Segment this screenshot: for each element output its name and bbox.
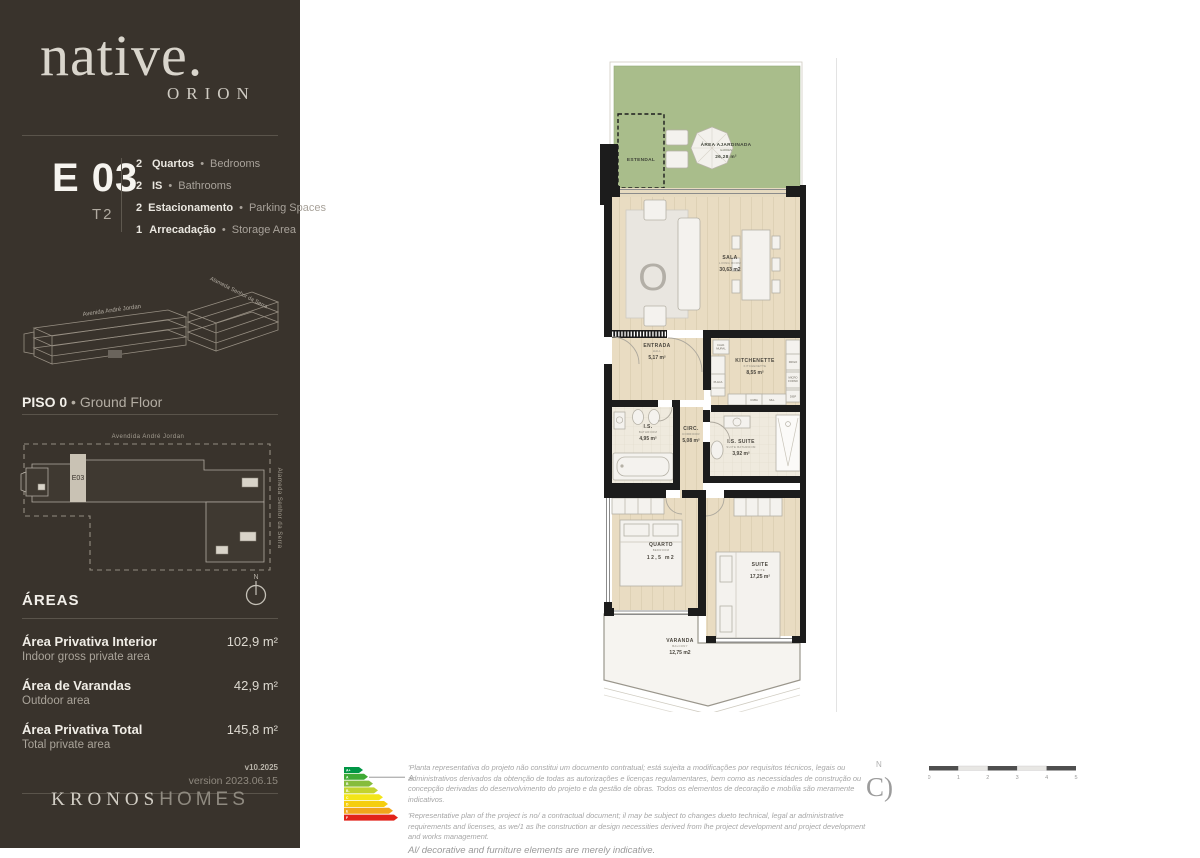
street-label-alameda: Alameda Senhor da Serra bbox=[209, 276, 269, 311]
svg-text:F: F bbox=[346, 816, 348, 820]
unit-code: E 03 bbox=[52, 156, 138, 201]
varanda-sub: BALCONY bbox=[672, 644, 687, 648]
fridge-label: FRIGO bbox=[789, 360, 798, 364]
wardrobe-icon bbox=[612, 498, 664, 514]
feature-row: 2 Quartos • Bedrooms bbox=[136, 158, 296, 170]
feature-pt: Quartos bbox=[152, 158, 194, 170]
disclaimer-en-note: Al/ decorative and furniture elements ar… bbox=[408, 844, 866, 858]
feature-en: Bedrooms bbox=[210, 158, 260, 170]
areas-section: ÁREAS Área Privativa Interior Indoor gro… bbox=[22, 592, 278, 794]
feature-en: Bathrooms bbox=[178, 180, 231, 192]
circ-area-value: 5,08 m² bbox=[682, 438, 700, 444]
disclaimer-pt: 'Planta representativa do projeto não co… bbox=[408, 763, 866, 806]
area-value: 42,9 m² bbox=[234, 678, 278, 707]
area-value: 145,8 m² bbox=[227, 722, 278, 751]
garden-sub: GARDEN bbox=[720, 148, 732, 152]
floorplan-brochure-page: { "colors": { "sidebar_bg": "#39332c", "… bbox=[0, 0, 1200, 848]
dining-table-icon bbox=[732, 230, 780, 300]
feature-qty: 2 bbox=[136, 180, 146, 192]
area-pt: Área Privativa Interior bbox=[22, 634, 157, 649]
is-sub: BATHROOM bbox=[639, 430, 658, 434]
entrada-area-value: 5,17 m² bbox=[648, 355, 666, 361]
sala-sub: LIVING ROOM bbox=[719, 261, 741, 265]
svg-text:1: 1 bbox=[957, 775, 960, 781]
svg-text:4: 4 bbox=[1045, 775, 1048, 781]
bullet: • bbox=[200, 158, 204, 170]
kitchenette-sub: KITCHENETTE bbox=[744, 364, 767, 368]
rug-letter-motif: O bbox=[638, 257, 668, 299]
unit-features-list: 2 Quartos • Bedrooms 2 IS • Bathrooms 2 … bbox=[136, 158, 296, 246]
feature-pt: IS bbox=[152, 180, 162, 192]
area-value: 102,9 m² bbox=[227, 634, 278, 663]
quarto-area-value: 12,5 m2 bbox=[647, 555, 675, 561]
corridor-label: CIRC. CORRIDOR 5,08 m² bbox=[682, 426, 700, 444]
svg-text:3: 3 bbox=[1016, 775, 1019, 781]
is-area-value: 4,95 m² bbox=[639, 436, 657, 442]
sink-label: CUBA bbox=[750, 398, 758, 402]
microwave-label2: FORNO bbox=[788, 379, 798, 383]
is-suite-area-value: 3,92 m² bbox=[732, 451, 750, 457]
svg-text:2: 2 bbox=[986, 775, 989, 781]
washbasin-icon bbox=[614, 412, 625, 429]
feature-qty: 2 bbox=[136, 202, 142, 214]
wardrobe-icon bbox=[734, 498, 782, 516]
garden-area: ESTENDAL ÁREA AJARDINADA GARDEN 26,28 m² bbox=[610, 62, 802, 198]
shower-icon bbox=[776, 415, 800, 471]
bidet-icon bbox=[649, 410, 660, 425]
feature-row: 2 Estacionamento • Parking Spaces bbox=[136, 202, 296, 214]
areas-title: ÁREAS bbox=[22, 592, 278, 609]
site-unit-label: E03 bbox=[72, 475, 85, 482]
entrada-sub: HALL bbox=[653, 349, 661, 353]
disclaimer: 'Planta representativa do projeto não co… bbox=[408, 763, 866, 858]
version-short: v10.2025 bbox=[22, 763, 278, 772]
disclaimer-en: 'Representative plan of the project is n… bbox=[408, 811, 866, 843]
armchair-icon bbox=[644, 200, 666, 220]
feature-qty: 2 bbox=[136, 158, 146, 170]
bullet: • bbox=[239, 202, 243, 214]
hob-label: PLACA bbox=[714, 380, 723, 384]
sala-area-value: 30,63 m2 bbox=[719, 267, 740, 273]
toilet-icon bbox=[711, 441, 723, 459]
garden-name: ÁREA AJARDINADA bbox=[701, 141, 752, 148]
building-wireframe-illustration: Avenida André Jordan Alameda Senhor da S… bbox=[20, 276, 282, 394]
armchair-icon bbox=[644, 306, 666, 326]
unit-type: T2 bbox=[92, 206, 114, 223]
feature-row: 1 Arrecadação • Storage Area bbox=[136, 224, 296, 236]
bullet: • bbox=[71, 394, 76, 410]
site-street-top: Avendida André Jordan bbox=[112, 434, 185, 440]
developer-name-kronos: KRONOS bbox=[51, 789, 159, 810]
kitchenette-area-value: 8,55 m² bbox=[746, 370, 764, 376]
estendal-label: ESTENDAL bbox=[627, 157, 655, 163]
divider bbox=[22, 414, 278, 415]
area-en: Outdoor area bbox=[22, 695, 131, 707]
area-pt: Área de Varandas bbox=[22, 678, 131, 693]
area-row: Área Privativa Interior Indoor gross pri… bbox=[22, 634, 278, 663]
svg-text:0: 0 bbox=[928, 775, 931, 781]
floor-plan-drawing: ESTENDAL ÁREA AJARDINADA GARDEN 26,28 m²… bbox=[598, 58, 848, 712]
building-right-wing bbox=[188, 292, 278, 351]
floor-pt: PISO 0 bbox=[22, 394, 67, 410]
sidebar: native. ORION E 03 T2 2 Quartos • Bedroo… bbox=[0, 0, 300, 848]
bed-icon bbox=[620, 520, 682, 586]
bed-icon bbox=[716, 552, 780, 638]
area-row: Área de Varandas Outdoor area 42,9 m² bbox=[22, 678, 278, 707]
garden-area-value: 26,28 m² bbox=[715, 154, 737, 160]
site-plan: Avendida André Jordan Alameda Senhor da … bbox=[18, 428, 286, 580]
floor-en: Ground Floor bbox=[80, 394, 162, 410]
boiler-label2: MURAL bbox=[716, 347, 726, 351]
bullet: • bbox=[168, 180, 172, 192]
floor-heading: PISO 0 • Ground Floor bbox=[22, 394, 162, 410]
svg-text:5: 5 bbox=[1074, 775, 1077, 781]
brand-sub-logo: ORION bbox=[167, 84, 256, 104]
bullet: • bbox=[222, 224, 226, 236]
circ-sub: CORRIDOR bbox=[682, 432, 700, 436]
varanda-area-value: 12,75 m2 bbox=[669, 650, 690, 656]
feature-en: Parking Spaces bbox=[249, 202, 326, 214]
suite-sub: SUITE bbox=[755, 568, 765, 572]
compass-north-letter: N bbox=[253, 574, 258, 581]
divider bbox=[22, 618, 278, 619]
sofa-icon bbox=[678, 218, 700, 310]
street-label-avenida: Avenida André Jordan bbox=[82, 304, 141, 318]
feature-qty: 1 bbox=[136, 224, 143, 236]
suite-area-value: 17,25 m² bbox=[750, 574, 770, 580]
building-left-wing bbox=[24, 310, 186, 364]
north-arrow-glyph: C) bbox=[866, 772, 893, 803]
divider bbox=[22, 135, 278, 136]
energy-bars: A+ A B B- C D E F bbox=[344, 767, 398, 821]
feature-en: Storage Area bbox=[232, 224, 296, 236]
is-suite-sub: SUITE BATHROOM bbox=[726, 445, 756, 449]
north-label: N bbox=[876, 760, 882, 769]
brand-logo: native. bbox=[40, 22, 270, 89]
area-en: Indoor gross private area bbox=[22, 651, 157, 663]
area-pt: Área Privativa Total bbox=[22, 722, 142, 737]
area-en: Total private area bbox=[22, 739, 142, 751]
boiler-label: CALD. bbox=[717, 343, 725, 347]
area-row: Área Privativa Total Total private area … bbox=[22, 722, 278, 751]
quarto-sub: BEDROOM bbox=[653, 548, 670, 552]
svg-text:B-: B- bbox=[346, 789, 350, 793]
svg-text:A+: A+ bbox=[346, 769, 350, 773]
feature-pt: Estacionamento bbox=[148, 202, 233, 214]
microwave-label: MICRO bbox=[789, 376, 798, 380]
bathtub-icon bbox=[613, 453, 673, 480]
toilet-icon bbox=[633, 410, 644, 425]
feature-row: 2 IS • Bathrooms bbox=[136, 180, 296, 192]
developer-name-homes: HOMES bbox=[159, 789, 249, 810]
scale-bar: 0 1 2 3 4 5 bbox=[928, 763, 1080, 783]
vertical-divider bbox=[121, 158, 122, 232]
dishwasher-label: MLL bbox=[769, 398, 775, 402]
site-street-right: Alameda Senhor da Serra bbox=[276, 468, 282, 549]
feature-pt: Arrecadação bbox=[149, 224, 216, 236]
pantry-label: DISP bbox=[790, 395, 796, 399]
site-buildings bbox=[21, 460, 264, 562]
developer-logo: KRONOSHOMES bbox=[0, 789, 300, 811]
version-long: version 2023.06.15 bbox=[22, 775, 278, 787]
